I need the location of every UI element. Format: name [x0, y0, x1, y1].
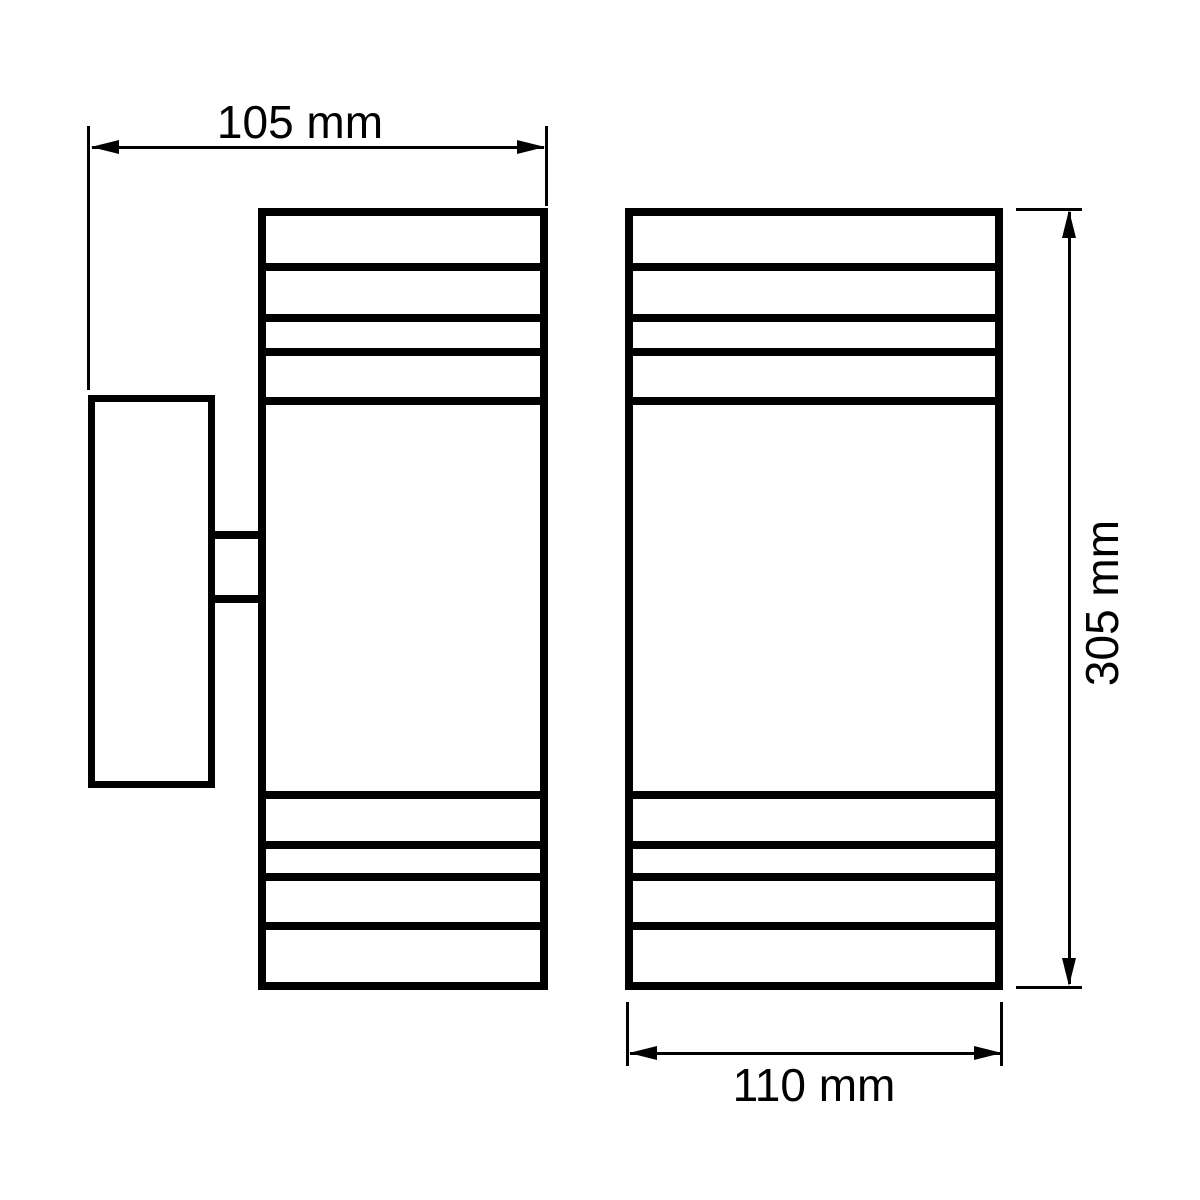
rib-line [258, 922, 548, 930]
extension-line [1016, 986, 1082, 989]
arrow-up-icon [1062, 210, 1076, 238]
rib-line [258, 348, 548, 356]
depth-dimension-label: 105 mm [150, 99, 450, 145]
rib-line [258, 791, 548, 799]
rib-line [258, 263, 548, 271]
height-dimension-label: 305 mm [1077, 453, 1127, 753]
arrow-right-icon [974, 1046, 1002, 1060]
arrow-left-icon [91, 140, 119, 154]
arrow-down-icon [1062, 958, 1076, 986]
rib-line [258, 873, 548, 881]
width-dimension-label: 110 mm [664, 1062, 964, 1108]
rib-line [258, 314, 548, 322]
rib-line [625, 397, 1003, 405]
rib-line [625, 922, 1003, 930]
dimension-line-height [1068, 212, 1071, 984]
wall-mount-plate [88, 395, 215, 788]
mounting-arm-bottom-edge [208, 595, 262, 603]
technical-drawing-canvas: 105 mm 305 mm 110 mm [0, 0, 1200, 1200]
rib-line [258, 841, 548, 849]
arrow-left-icon [629, 1046, 657, 1060]
rib-line [625, 314, 1003, 322]
extension-line [87, 126, 90, 390]
rib-line [625, 841, 1003, 849]
mounting-arm-top-edge [208, 531, 262, 539]
rib-line [625, 791, 1003, 799]
arrow-right-icon [517, 140, 545, 154]
extension-line [545, 126, 548, 206]
rib-line [258, 397, 548, 405]
rib-line [625, 873, 1003, 881]
rib-line [625, 263, 1003, 271]
dimension-line-width [630, 1052, 1002, 1055]
rib-line [625, 348, 1003, 356]
